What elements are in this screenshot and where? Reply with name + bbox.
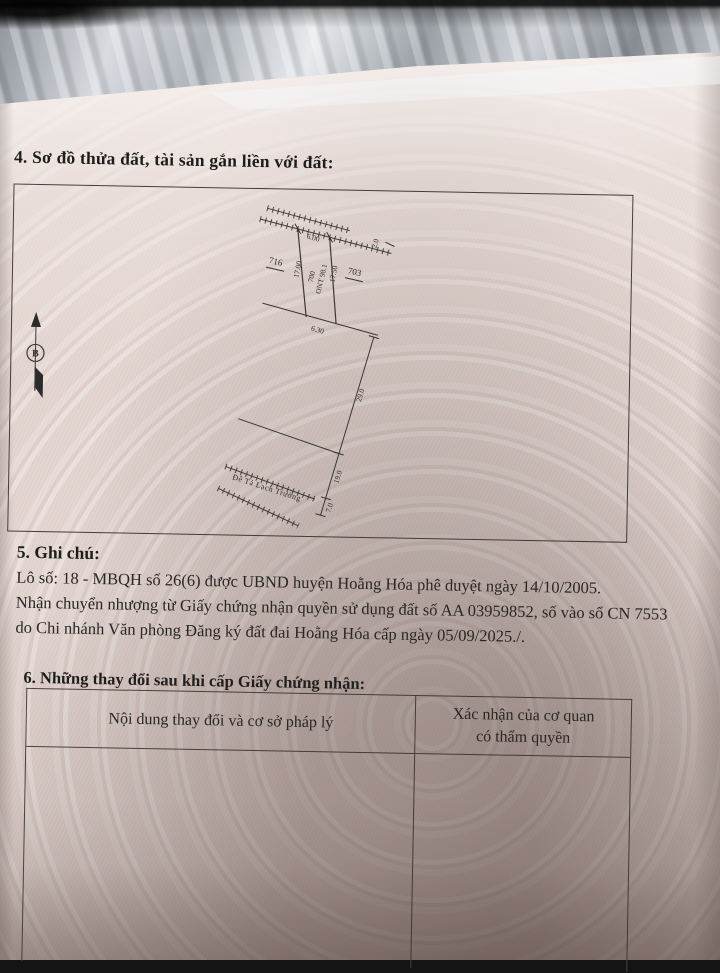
offset-dimension-line [237,333,379,517]
section5-heading: 5. Ghi chú: [17,542,101,565]
adjacent-parcel-right-label: 703 [347,265,363,278]
parcel-diagram: B [7,184,633,543]
adjacent-right-underline [345,278,363,282]
col-confirmation-line1: Xác nhận của cơ quan [453,704,595,728]
empty-content-cell [22,747,415,968]
dim-top-label: 6.00 [306,232,321,244]
adjacent-parcel-left-label: 716 [268,255,284,268]
dim-offset1-label: 29.0 [354,387,367,402]
dim-right-label: 17.50 [327,265,339,284]
dim-offset3-label: 7.0 [324,502,335,514]
dim-bottom-label: 6.30 [310,324,325,336]
north-label: B [32,348,39,359]
north-arrow-icon: B [26,312,45,398]
document-photo: 4. Sơ đồ thửa đất, tài sản gắn liền với … [0,0,720,960]
page-content: 4. Sơ đồ thửa đất, tài sản gắn liền với … [0,0,720,972]
parcel-diagram-svg: B [8,185,632,542]
changes-table: Nội dung thay đổi và cơ sở pháp lý Xác n… [21,688,632,972]
dim-road-width-label: 2.0 [369,237,380,249]
dike-name-label: Đê Tả Lạch Trường [231,472,302,503]
col-confirmation-line2: có thẩm quyền [476,726,571,749]
col-confirmation-header: Xác nhận của cơ quan có thẩm quyền [416,696,632,757]
empty-confirmation-cell [412,754,631,972]
parcel-info-label: 700 ONT 98.1 [304,261,329,295]
section4-heading: 4. Sơ đồ thửa đất, tài sản gắn liền với … [14,147,334,174]
parcel-landuse-area-label: ONT 98.1 [313,263,329,295]
section5-line-3: do Chi nhánh Văn phòng Đăng ký đất đai H… [15,618,525,647]
adjacent-left-underline [266,267,284,271]
col-content-header: Nội dung thay đổi và cơ sở pháp lý [26,689,416,753]
changes-table-empty-row [22,747,630,972]
